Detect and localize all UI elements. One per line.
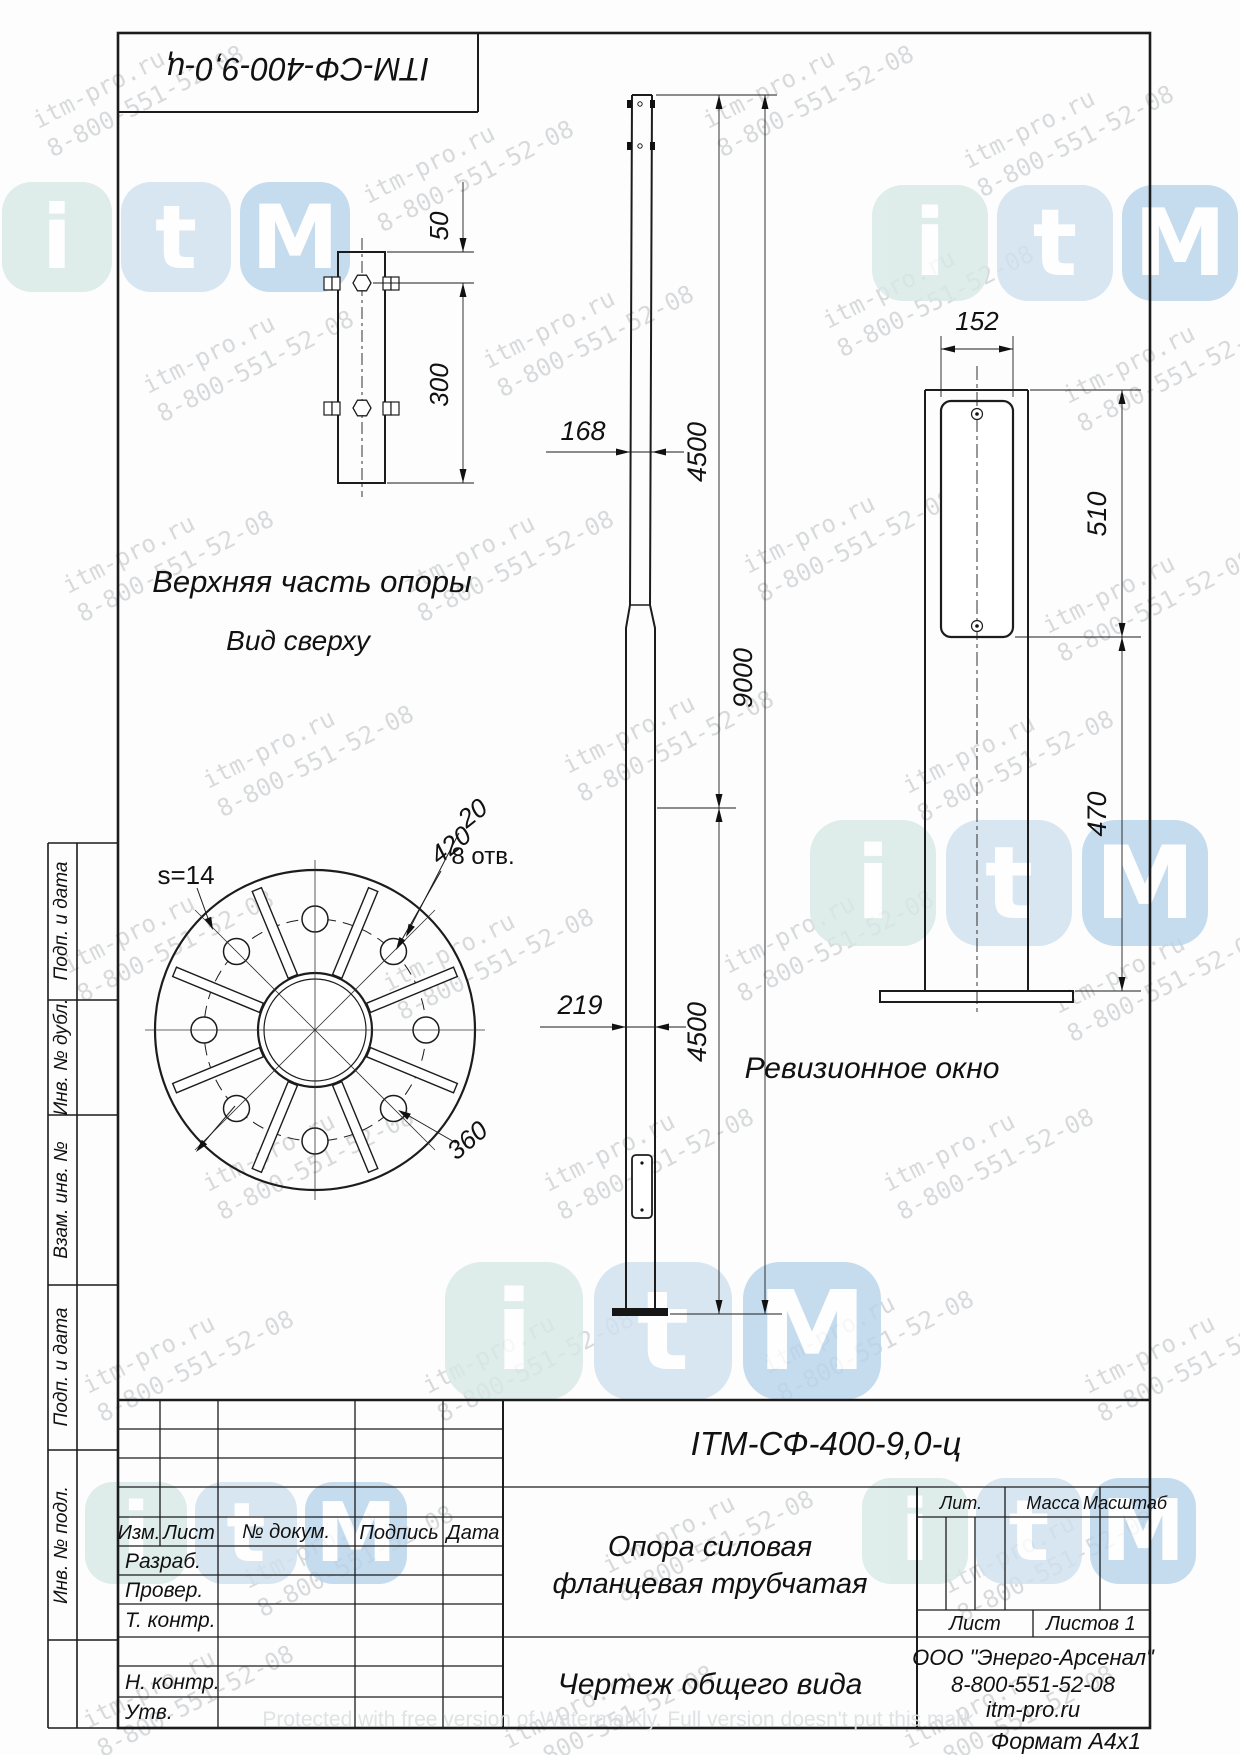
rotated-designation: ITM-СФ-400-9,0-ц <box>167 51 429 87</box>
tb-company-3: itm-pro.ru <box>986 1697 1080 1722</box>
col-izm: Изм. <box>118 1522 161 1544</box>
tb-mass: Масса <box>1026 1493 1079 1513</box>
dim-4500-top: 4500 <box>682 422 712 482</box>
row-utv: Утв. <box>124 1701 173 1724</box>
strip-label: Инв. № подл. <box>51 1486 72 1604</box>
tb-company-1: ООО "Энерго-Арсенал" <box>912 1645 1155 1670</box>
tb-scale: Масштаб <box>1083 1493 1168 1513</box>
row-prover: Провер. <box>125 1579 203 1602</box>
tb-name-line2: фланцевая трубчатая <box>553 1568 868 1600</box>
tb-company-2: 8-800-551-52-08 <box>951 1672 1116 1697</box>
title-block-text: Изм. Лист № докум. Подпись Дата Разраб. … <box>118 1425 1168 1754</box>
tb-designation: ITM-СФ-400-9,0-ц <box>691 1425 962 1462</box>
tb-lit: Лит. <box>939 1493 982 1513</box>
tb-name-line1: Опора силовая <box>608 1531 812 1563</box>
dim-168: 168 <box>560 416 605 446</box>
strip-label: Подп. и дата <box>51 1308 72 1427</box>
dim-360: 360 <box>441 1114 494 1165</box>
row-nkontr: Н. контр. <box>125 1671 220 1694</box>
row-razrab: Разраб. <box>125 1550 201 1573</box>
drawing-canvas: ITM-СФ-400-9,0-ц Подп. и дата Инв. № дуб… <box>0 0 1240 1755</box>
view-revision-window <box>880 336 1141 1014</box>
dim-9000: 9000 <box>728 648 758 708</box>
tb-doc-type: Чертеж общего вида <box>558 1668 863 1701</box>
drawing-sheet: itm-pro.ru 8-800-551-52-08itm-pro.ru 8-8… <box>0 0 1240 1755</box>
row-tkontr: Т. контр. <box>125 1609 216 1632</box>
dim-300: 300 <box>424 363 454 407</box>
dim-8-holes: 8 отв. <box>451 843 514 870</box>
view-revision-label: Ревизионное окно <box>745 1052 1000 1085</box>
tb-sheets: Листов 1 <box>1044 1613 1136 1635</box>
strip-label: Взам. инв. № <box>51 1141 72 1259</box>
strip-label: Подп. и дата <box>51 862 72 981</box>
pole-base-plate <box>612 1308 668 1316</box>
view-upper-part-label: Верхняя часть опоры <box>152 564 472 599</box>
col-date: Дата <box>445 1522 500 1544</box>
dim-152: 152 <box>955 306 999 336</box>
view-top-flange <box>145 860 485 1200</box>
col-list: Лист <box>161 1522 215 1544</box>
dim-s14: s=14 <box>157 860 214 890</box>
side-strip: Подп. и дата Инв. № дубл. Взам. инв. № П… <box>51 862 72 1604</box>
view-top-label: Вид сверху <box>226 625 372 656</box>
col-doc: № докум. <box>242 1521 330 1543</box>
dim-4500-bottom: 4500 <box>682 1002 712 1062</box>
dim-50: 50 <box>424 211 454 240</box>
strip-label: Инв. № дубл. <box>51 999 72 1116</box>
tb-format: Формат А4х1 <box>991 1728 1141 1754</box>
revision-base-plate <box>880 991 1073 1002</box>
dim-470: 470 <box>1082 791 1112 836</box>
tb-sheet: Лист <box>947 1613 1001 1635</box>
dim-219: 219 <box>556 990 602 1020</box>
dim-510: 510 <box>1082 491 1112 536</box>
protected-watermark: Protected with free version of Watermark… <box>262 1708 973 1732</box>
col-sign: Подпись <box>359 1522 438 1544</box>
